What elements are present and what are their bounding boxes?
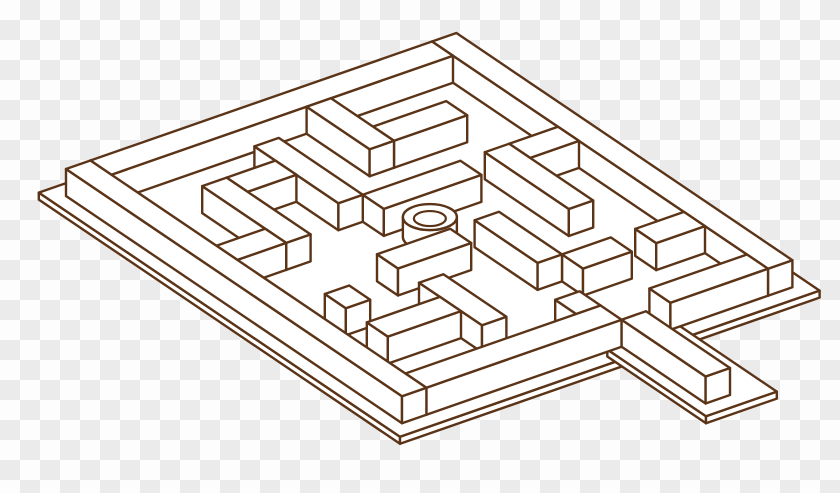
goal-cylinder-hole (414, 211, 446, 226)
isometric-maze-illustration (0, 0, 840, 493)
transparent-canvas (0, 0, 840, 493)
